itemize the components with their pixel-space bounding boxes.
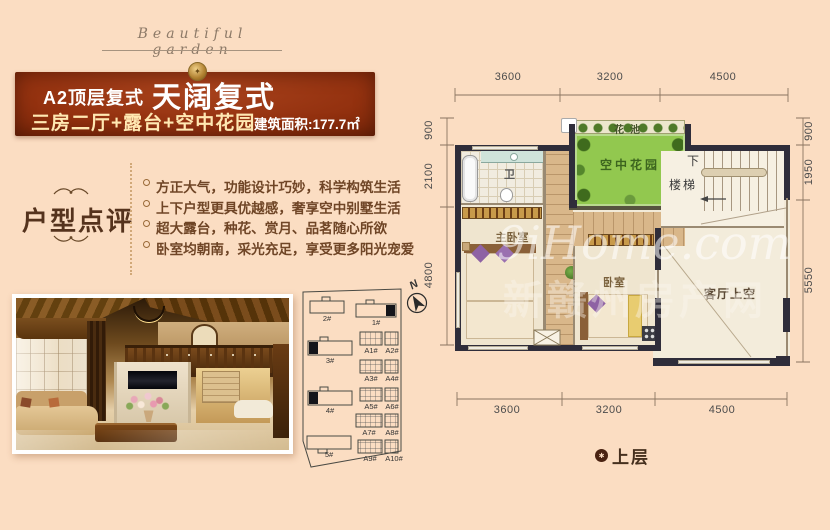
right-wall-mid — [783, 298, 790, 332]
compass-label: N — [408, 278, 421, 292]
list-item: 卧室均朝南，采光充足，享受更多阳光宠爱 — [143, 238, 443, 253]
room-label-down: 下 — [687, 152, 699, 169]
floor-tag-label: 上层 — [612, 443, 650, 468]
stair-landing — [701, 168, 767, 177]
review-divider — [130, 163, 132, 275]
dim-left-3: 4800 — [423, 262, 435, 288]
toilet — [500, 188, 513, 202]
window — [582, 346, 638, 350]
watermark-cn: 新赣州房产网 — [503, 268, 767, 326]
right-wall-thin — [786, 332, 788, 358]
photo-shelves — [202, 371, 240, 403]
block-label: A6# — [385, 402, 398, 411]
room-label-flower-bed: 花池 — [602, 121, 658, 136]
right-wall-top — [784, 145, 790, 200]
review-bullet-list: 方正大气，功能设计巧妙，科学构筑生活 上下户型更具优越感，奢享空中别墅生活 超大… — [143, 176, 443, 252]
dim-bottom-3: 4500 — [709, 404, 735, 416]
photo-pillow — [48, 398, 59, 408]
block-label: A1# — [364, 346, 377, 355]
bathroom-bottom-wall — [461, 203, 546, 205]
block-label: A5# — [364, 402, 377, 411]
block-label: A9# — [363, 454, 376, 463]
dim-top-2: 3200 — [597, 71, 623, 83]
brand-script-title: Beautiful garden — [100, 26, 285, 58]
ornament-top-icon — [52, 186, 90, 196]
top-wall-right — [685, 145, 790, 151]
room-label-bath: 卫 — [504, 166, 515, 182]
dim-top-1: 3600 — [495, 71, 521, 83]
photo-chaise — [234, 400, 272, 418]
bullet-text: 方正大气，功能设计巧妙，科学构筑生活 — [156, 176, 401, 196]
review-heading: 户型点评 — [20, 201, 136, 238]
list-item: 方正大气，功能设计巧妙，科学构筑生活 — [143, 176, 443, 191]
block-label: A7# — [362, 428, 375, 437]
building-label: 3# — [326, 356, 334, 365]
window — [472, 146, 538, 150]
bullet-dot-icon — [143, 179, 150, 186]
dim-right-1: 900 — [803, 121, 815, 141]
dim-bottom-2: 3200 — [596, 404, 622, 416]
ornament-bottom-icon — [52, 234, 90, 244]
gold-emblem-icon: ✦ — [188, 62, 207, 81]
bullet-dot-icon — [143, 220, 150, 227]
block-label: A10# — [385, 454, 403, 463]
photo-tv — [128, 371, 177, 389]
wash-basin — [510, 153, 518, 161]
garden-post — [569, 200, 577, 208]
dim-right-3: 5550 — [803, 267, 815, 293]
floor-tag-icon: ✱ — [595, 449, 608, 462]
block-label: A3# — [364, 374, 377, 383]
dim-bottom-1: 3600 — [494, 404, 520, 416]
building-label: 1# — [372, 318, 380, 327]
photo-flowers — [125, 391, 171, 412]
list-item: 超大露台，种花、赏月、品茗随心所欲 — [143, 217, 443, 232]
room-label-sky-garden: 空中花园 — [586, 156, 674, 173]
unit-subtitle: 三房二厅+露台+空中花园 — [31, 108, 255, 135]
garden-left-wall — [569, 124, 575, 208]
list-item: 上下户型更具优越感，奢享空中别墅生活 — [143, 197, 443, 212]
photo-newel-post — [273, 344, 289, 438]
block-label: A8# — [385, 428, 398, 437]
dim-left-2: 2100 — [423, 163, 435, 189]
dim-top-3: 4500 — [710, 71, 736, 83]
bullet-text: 卧室均朝南，采光充足，享受更多阳光宠爱 — [156, 238, 414, 258]
interior-photo — [12, 294, 293, 454]
room-label-stairs: 楼梯 — [669, 176, 697, 193]
building-label: 2# — [323, 314, 331, 323]
bathtub — [462, 155, 478, 202]
bullet-dot-icon — [143, 241, 150, 248]
corner-wall — [776, 356, 790, 366]
window — [456, 272, 460, 328]
watermark-latin: 9iHome.com — [497, 216, 791, 270]
dim-right-2: 1950 — [803, 159, 815, 185]
window — [678, 360, 770, 364]
bullet-text: 超大露台，种花、赏月、品茗随心所欲 — [156, 217, 387, 237]
built-area-label: 建筑面积:177.7㎡ — [254, 113, 360, 133]
bullet-dot-icon — [143, 200, 150, 207]
block-label: A4# — [385, 374, 398, 383]
window — [468, 346, 528, 350]
dim-left-1: 900 — [423, 120, 435, 140]
building-label: 4# — [326, 406, 334, 415]
block-label: A2# — [385, 346, 398, 355]
flyer-page: Beautiful garden ✦ A2顶层复式 天阔复式 三房二厅+露台+空… — [0, 0, 830, 530]
brand-underline — [102, 50, 282, 51]
master-nightstand — [462, 242, 470, 251]
stair-treads — [704, 151, 784, 211]
photo-floor-gloss — [16, 430, 289, 450]
bullet-text: 上下户型更具优越感，奢享空中别墅生活 — [156, 197, 401, 217]
unit-type-tag: A2顶层复式 — [43, 84, 144, 110]
building-label: 5# — [325, 450, 333, 459]
